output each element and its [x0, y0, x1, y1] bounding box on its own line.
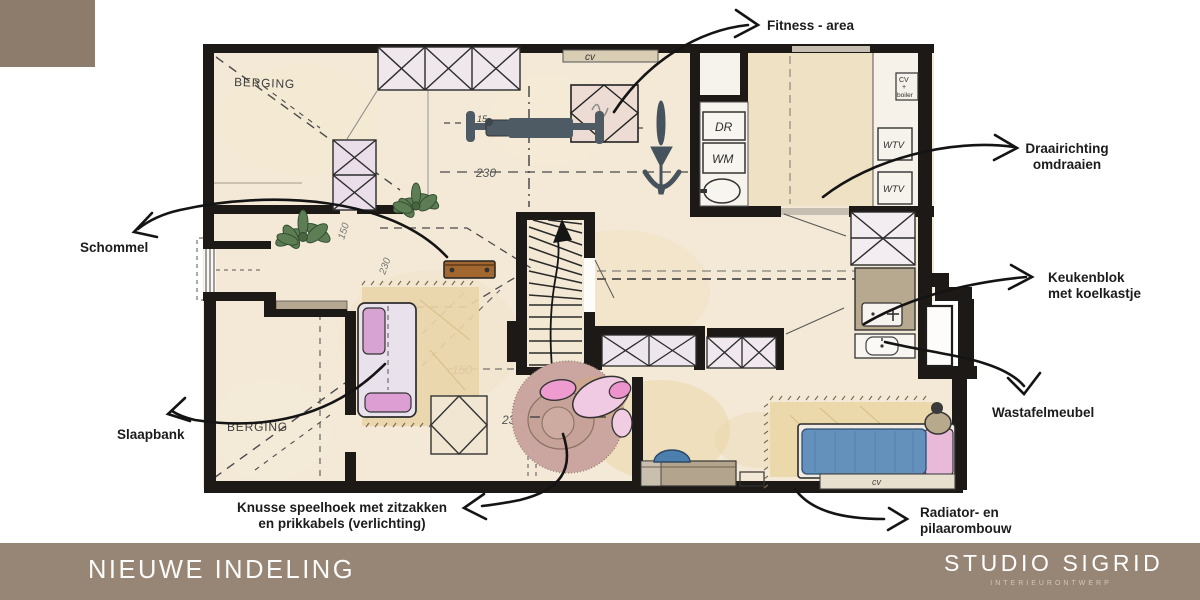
svg-text:WTV: WTV: [883, 140, 906, 151]
svg-text:CV: CV: [899, 77, 909, 84]
svg-text:BERGING: BERGING: [234, 75, 295, 91]
svg-text:WTV: WTV: [883, 184, 906, 195]
svg-text:Draairichting: Draairichting: [1025, 141, 1108, 156]
svg-text:omdraaien: omdraaien: [1033, 157, 1101, 172]
svg-text:WM: WM: [712, 152, 733, 166]
svg-text:INTERIEURONTWERP: INTERIEURONTWERP: [990, 580, 1112, 587]
svg-text:cv: cv: [872, 477, 882, 487]
svg-text:Fitness - area: Fitness - area: [767, 18, 855, 33]
svg-text:en prikkabels (verlichting): en prikkabels (verlichting): [258, 516, 425, 531]
svg-text:boiler: boiler: [897, 92, 914, 99]
svg-text:Knusse speelhoek met zitzakken: Knusse speelhoek met zitzakken: [237, 500, 447, 515]
svg-text:Keukenblok: Keukenblok: [1048, 270, 1125, 285]
svg-text:Radiator- en: Radiator- en: [920, 505, 999, 520]
svg-text:met koelkastje: met koelkastje: [1048, 286, 1142, 301]
svg-text:DR: DR: [715, 120, 733, 134]
svg-text:STUDIO SIGRID: STUDIO SIGRID: [944, 550, 1163, 576]
svg-text:cv: cv: [585, 52, 596, 63]
svg-text:NIEUWE INDELING: NIEUWE INDELING: [88, 556, 355, 584]
svg-text:+: +: [902, 84, 906, 91]
svg-text:230: 230: [475, 166, 496, 180]
svg-text:Wastafelmeubel: Wastafelmeubel: [992, 405, 1094, 420]
svg-text:15: 15: [477, 114, 488, 124]
svg-text:Schommel: Schommel: [80, 240, 148, 255]
svg-text:pilaarombouw: pilaarombouw: [920, 521, 1012, 536]
svg-text:Slaapbank: Slaapbank: [117, 427, 185, 442]
